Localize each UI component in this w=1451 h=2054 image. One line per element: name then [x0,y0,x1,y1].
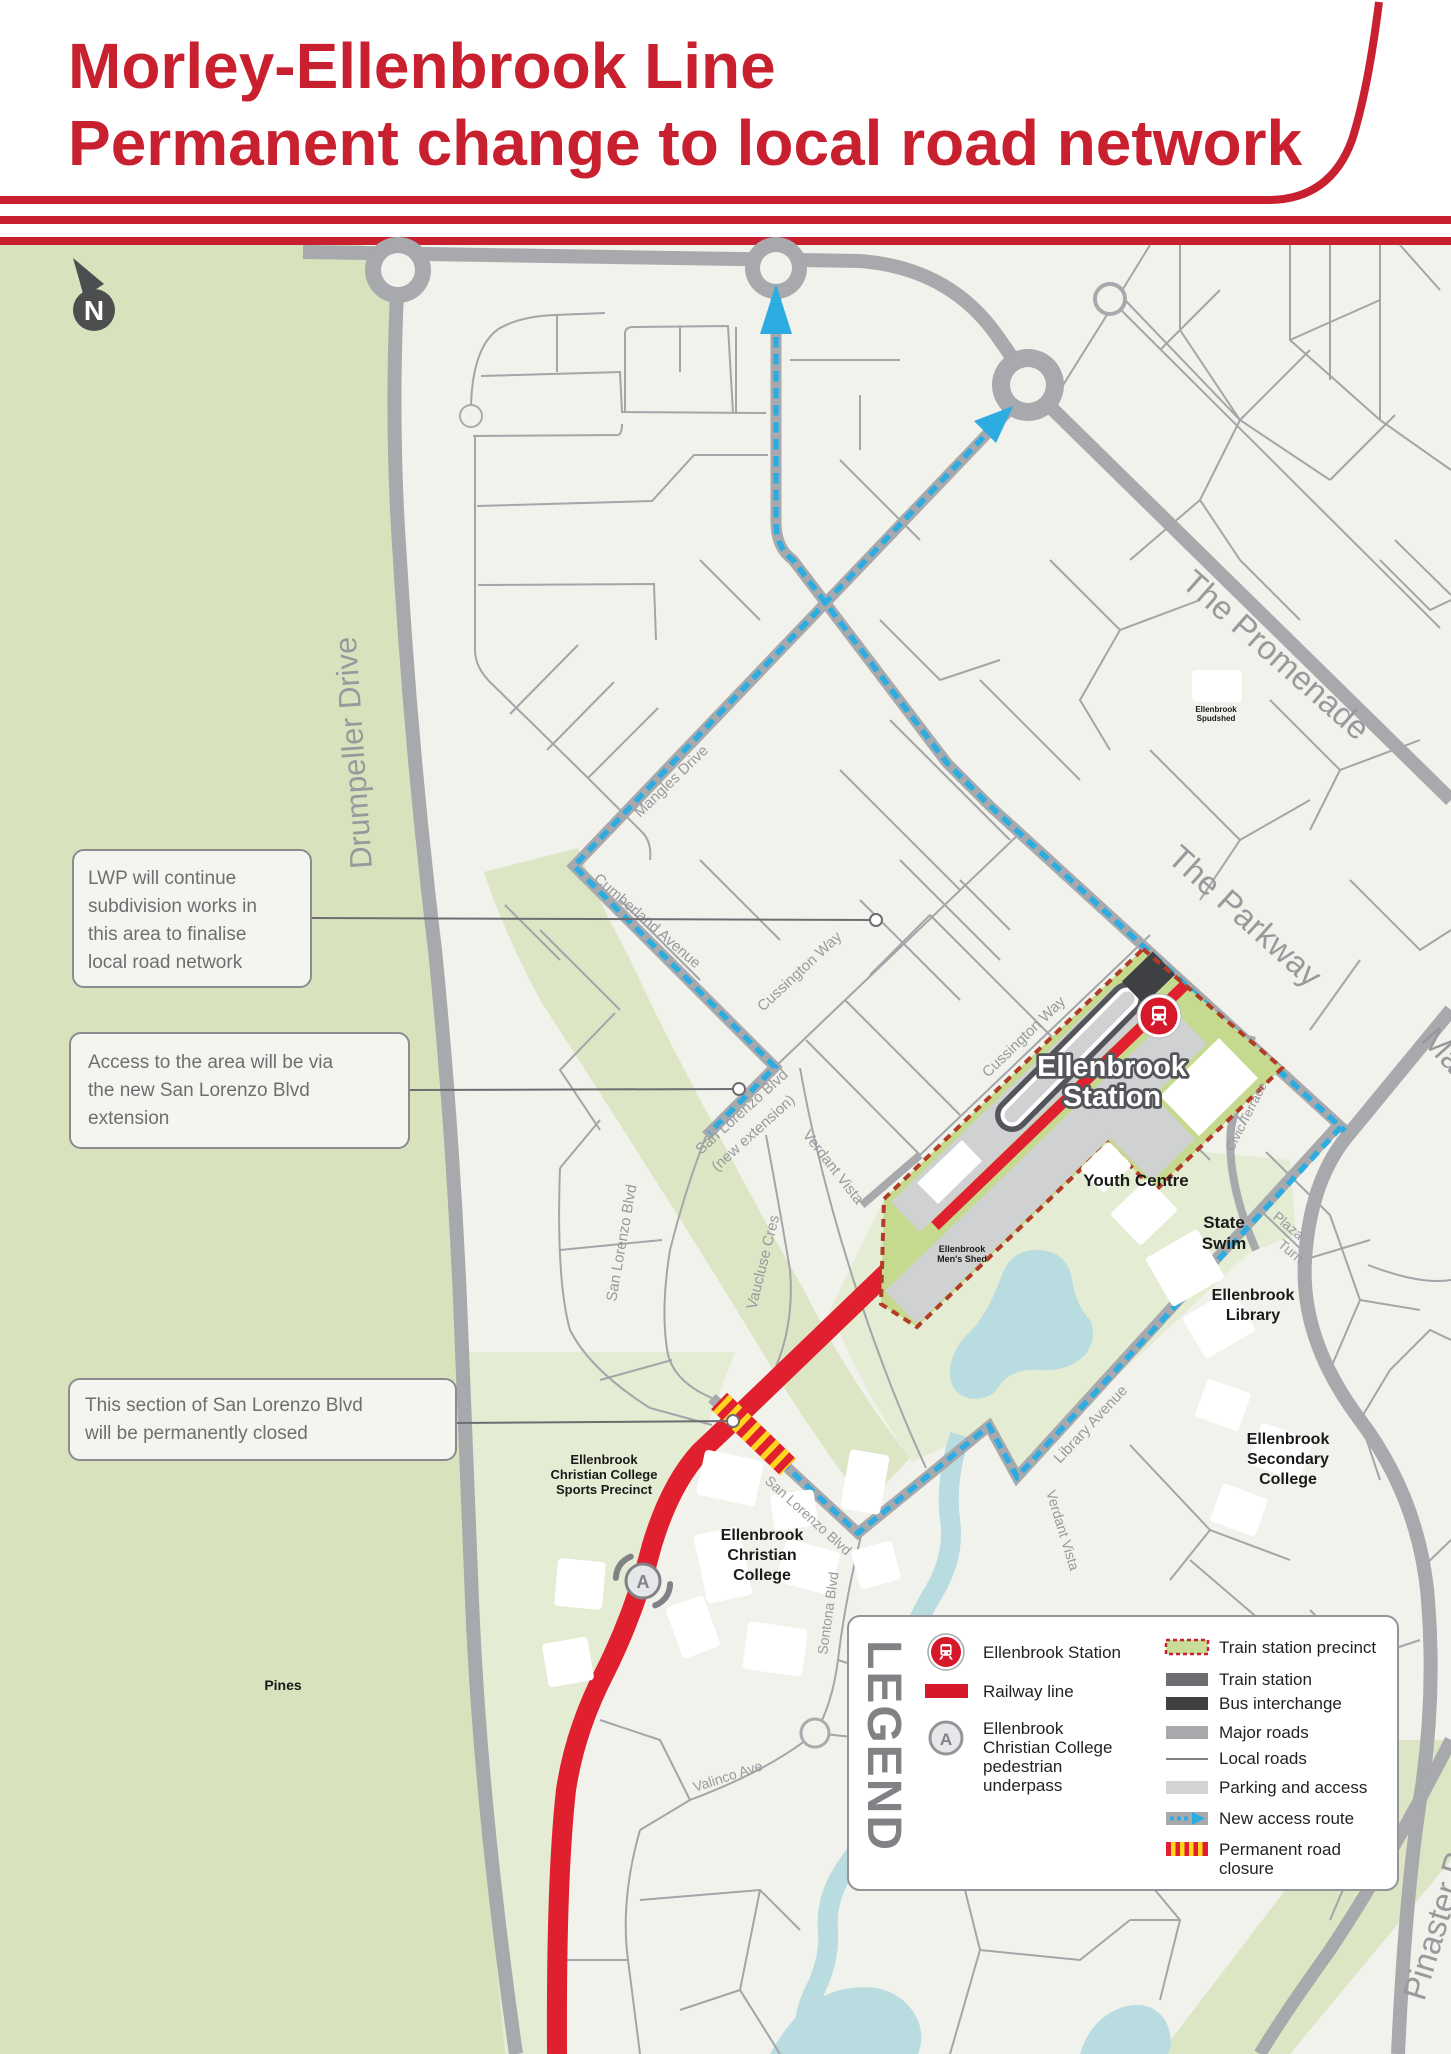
svg-text:College: College [1259,1471,1317,1488]
svg-text:LWP will continue: LWP will continue [88,868,236,889]
svg-text:Sports Precinct: Sports Precinct [556,1482,653,1497]
svg-text:Men's Shed: Men's Shed [937,1254,987,1264]
svg-text:Ellenbrook: Ellenbrook [570,1452,638,1467]
svg-text:Access to the area will be via: Access to the area will be via [88,1052,333,1073]
svg-text:Ellenbrook: Ellenbrook [983,1719,1064,1738]
svg-text:N: N [84,295,104,326]
svg-text:Morley-Ellenbrook Line: Morley-Ellenbrook Line [68,30,776,102]
svg-text:underpass: underpass [983,1776,1062,1795]
svg-text:Ellenbrook: Ellenbrook [939,1244,987,1254]
svg-text:Permanent road: Permanent road [1219,1840,1341,1859]
svg-text:closure: closure [1219,1859,1274,1878]
svg-text:LEGEND: LEGEND [857,1640,910,1852]
svg-text:will be permanently closed: will be permanently closed [84,1423,308,1444]
svg-text:Youth Centre: Youth Centre [1083,1171,1188,1190]
svg-text:Ellenbrook: Ellenbrook [1212,1287,1295,1304]
svg-text:Bus interchange: Bus interchange [1219,1694,1342,1713]
svg-text:subdivision works in: subdivision works in [88,896,257,917]
svg-text:Christian: Christian [727,1547,796,1564]
svg-text:Station: Station [1063,1081,1161,1113]
svg-text:extension: extension [88,1108,169,1129]
svg-text:State: State [1203,1213,1245,1232]
svg-text:Spudshed: Spudshed [1197,714,1236,723]
svg-text:Ellenbrook: Ellenbrook [1037,1051,1188,1083]
svg-text:Permanent change to local road: Permanent change to local road network [68,107,1302,179]
svg-text:Ellenbrook Station: Ellenbrook Station [983,1643,1121,1662]
svg-text:Parking and access: Parking and access [1219,1778,1367,1797]
svg-text:This section of San Lorenzo Bl: This section of San Lorenzo Blvd [85,1395,363,1416]
svg-text:Library: Library [1226,1307,1280,1324]
svg-text:Pines: Pines [264,1677,302,1693]
svg-text:A: A [637,1572,650,1592]
svg-text:Ellenbrook: Ellenbrook [1247,1431,1330,1448]
svg-text:this area to finalise: this area to finalise [88,924,246,945]
svg-text:Train station: Train station [1219,1670,1312,1689]
svg-text:Swim: Swim [1202,1234,1246,1253]
svg-text:Major roads: Major roads [1219,1723,1309,1742]
svg-text:Ellenbrook: Ellenbrook [721,1527,804,1544]
svg-text:Ellenbrook: Ellenbrook [1195,705,1237,714]
svg-text:New access route: New access route [1219,1809,1354,1828]
svg-text:the new San Lorenzo Blvd: the new San Lorenzo Blvd [88,1080,310,1101]
svg-text:Christian College: Christian College [551,1467,658,1482]
svg-text:Local roads: Local roads [1219,1749,1307,1768]
svg-text:Train station precinct: Train station precinct [1219,1638,1376,1657]
svg-text:Christian College: Christian College [983,1738,1112,1757]
svg-text:A: A [940,1730,952,1749]
svg-text:Secondary: Secondary [1247,1451,1329,1468]
svg-text:local road network: local road network [88,952,243,973]
svg-text:Railway line: Railway line [983,1682,1074,1701]
svg-text:pedestrian: pedestrian [983,1757,1062,1776]
svg-text:College: College [733,1567,791,1584]
